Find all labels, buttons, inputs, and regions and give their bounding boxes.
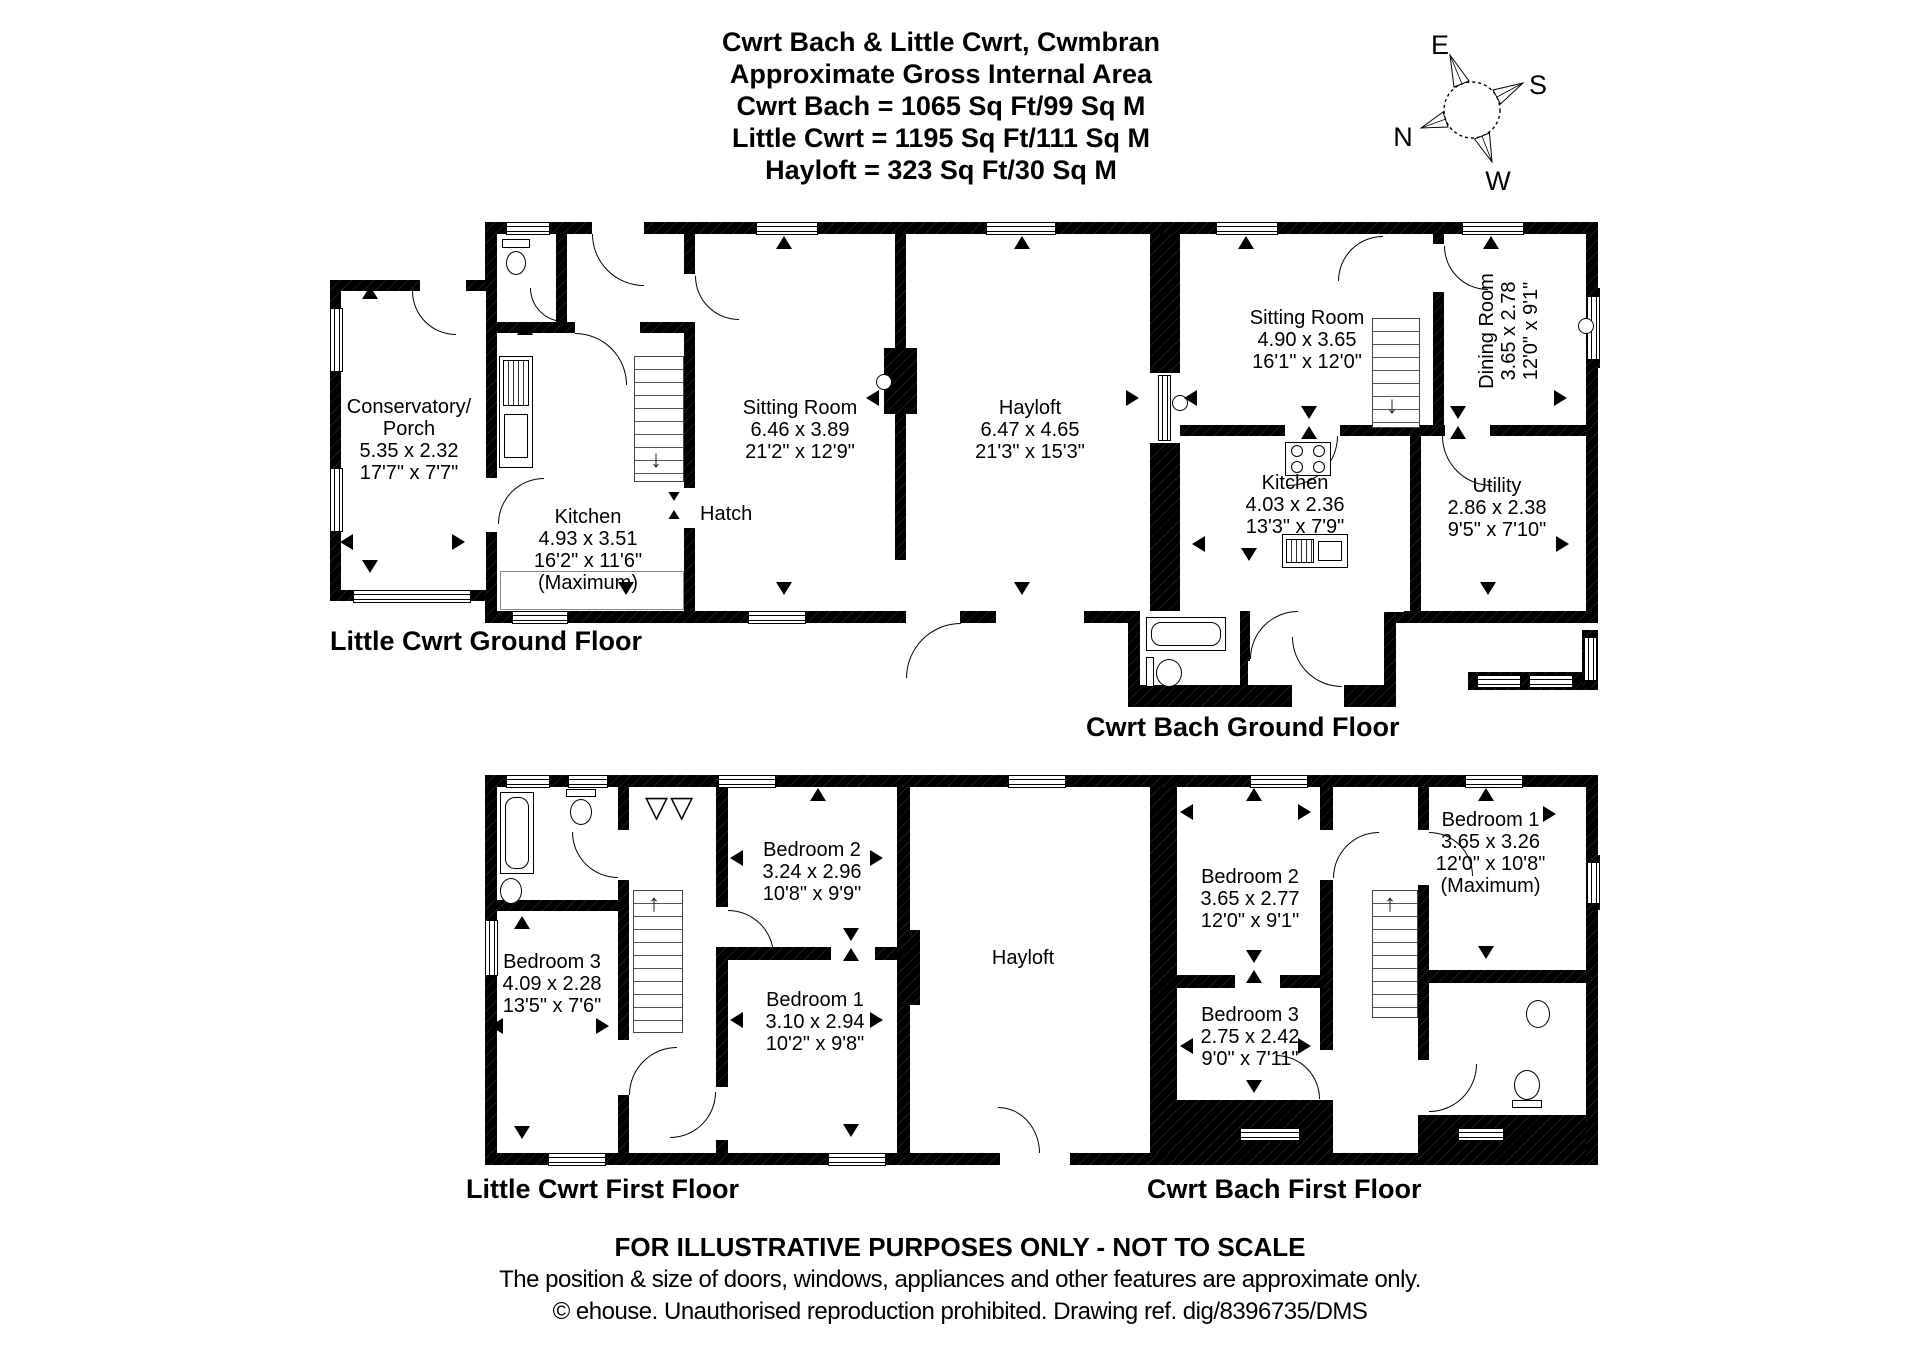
- room-label-bedroom1-cb: Bedroom 1 3.65 x 3.26 12'0" x 10'8" (Max…: [1398, 809, 1583, 897]
- direction-arrow-icon: [1180, 804, 1193, 820]
- window-icon: [1465, 775, 1523, 788]
- window-icon: [1462, 222, 1524, 235]
- bath-icon: [1146, 617, 1226, 651]
- door-opening: [996, 611, 1084, 623]
- wall: [618, 880, 629, 911]
- room-label-utility-cb: Utility 2.86 x 2.38 9'5" x 7'10": [1407, 475, 1587, 541]
- wall: [684, 528, 695, 611]
- direction-arrow-icon: [843, 948, 859, 961]
- room-label-hayloft-ground: Hayloft 6.47 x 4.65 21'3" x 15'3": [940, 397, 1120, 463]
- title-subtitle: Approximate Gross Internal Area: [0, 58, 1882, 90]
- room-label-bedroom3-cb: Bedroom 3 2.75 x 2.42 9'0" x 7'11": [1160, 1004, 1340, 1070]
- caption-little-cwrt-ground: Little Cwrt Ground Floor: [330, 626, 642, 657]
- door-opening: [1340, 599, 1404, 612]
- caption-cwrt-bach-ground: Cwrt Bach Ground Floor: [1086, 712, 1400, 743]
- footer-copyright: © ehouse. Unauthorised reproduction proh…: [0, 1296, 1920, 1328]
- direction-arrow-icon: [1298, 804, 1311, 820]
- door-opening: [1254, 599, 1308, 612]
- direction-arrow-icon: [1301, 406, 1317, 419]
- direction-arrow-icon: [1246, 1080, 1262, 1093]
- wall: [618, 1095, 629, 1153]
- wall: [716, 1140, 728, 1153]
- window-icon: [756, 222, 818, 235]
- compass-south-label: S: [1529, 70, 1547, 100]
- direction-arrow-icon: [1238, 236, 1254, 249]
- direction-arrow-icon: [452, 534, 465, 550]
- direction-arrow-icon: [1126, 390, 1139, 406]
- caption-cwrt-bach-first: Cwrt Bach First Floor: [1147, 1174, 1422, 1205]
- direction-arrow-icon: [843, 1124, 859, 1137]
- hob-icon: [1285, 442, 1331, 476]
- compass-north-label: N: [1393, 122, 1413, 152]
- window-icon: [1529, 675, 1573, 688]
- direction-arrow-icon: [1246, 788, 1262, 801]
- window-icon: [748, 611, 806, 624]
- stair-down-arrow-icon: ↓: [1386, 394, 1398, 418]
- window-icon: [568, 775, 608, 788]
- direction-arrow-icon: [490, 1018, 503, 1034]
- basin-icon: [1526, 1000, 1550, 1028]
- room-label-sitting-cb: Sitting Room 4.90 x 3.65 16'1" x 12'0": [1217, 307, 1397, 373]
- window-icon: [1240, 1128, 1300, 1141]
- window-icon: [1477, 675, 1521, 688]
- window-icon: [353, 590, 471, 603]
- room-label-bedroom2-lc: Bedroom 2 3.24 x 2.96 10'8" x 9'9": [722, 839, 902, 905]
- toilet-icon: [570, 799, 592, 825]
- hatch-symbol-icon: [668, 492, 679, 501]
- toilet-icon: [1514, 1070, 1540, 1100]
- compass-west-label: W: [1485, 166, 1511, 196]
- window-icon: [1587, 862, 1600, 904]
- wall: [1150, 787, 1177, 1153]
- window-icon: [1584, 637, 1597, 681]
- page-title: Cwrt Bach & Little Cwrt, Cwmbran: [0, 26, 1882, 58]
- room-label-kitchen-lc: Kitchen 4.93 x 3.51 16'2" x 11'6" (Maxim…: [498, 506, 678, 594]
- wall: [1320, 787, 1333, 830]
- direction-arrow-icon: [1184, 390, 1197, 406]
- toilet-icon: [1156, 659, 1182, 687]
- direction-arrow-icon: [843, 928, 859, 941]
- floorplan-page: Cwrt Bach & Little Cwrt, Cwmbran Approxi…: [0, 0, 1920, 1356]
- stair-down-arrow-icon: ↓: [650, 448, 662, 472]
- window-icon: [1458, 1128, 1504, 1141]
- footer-disclaimer: FOR ILLUSTRATIVE PURPOSES ONLY - NOT TO …: [0, 1230, 1920, 1264]
- direction-arrow-icon: [517, 322, 533, 335]
- direction-arrow-icon: [1450, 426, 1466, 439]
- hatch-label: Hatch: [700, 503, 790, 525]
- direction-arrow-icon: [1478, 788, 1494, 801]
- direction-arrow-icon: [1246, 950, 1262, 963]
- title-area-hayloft: Hayloft = 323 Sq Ft/30 Sq M: [0, 154, 1882, 186]
- wall: [1418, 885, 1429, 970]
- direction-arrow-icon: [340, 534, 353, 550]
- bath-icon: [500, 792, 534, 874]
- sink-bowl-icon: [1318, 541, 1342, 561]
- room-label-conservatory: Conservatory/ Porch 5.35 x 2.32 17'7" x …: [324, 396, 494, 484]
- direction-arrow-icon: [1478, 946, 1494, 959]
- direction-arrow-icon: [514, 916, 530, 929]
- cupboard-doors-icon: ▽▽: [645, 790, 695, 825]
- wall: [1240, 611, 1250, 661]
- door-opening: [1000, 1153, 1070, 1165]
- window-icon: [506, 222, 550, 235]
- stair-up-arrow-icon: ↑: [648, 892, 660, 916]
- footer: FOR ILLUSTRATIVE PURPOSES ONLY - NOT TO …: [0, 1230, 1920, 1328]
- direction-arrow-icon: [1241, 548, 1257, 561]
- toilet-icon: [1512, 1100, 1542, 1108]
- room-label-dining-cb: Dining Room 3.65 x 2.78 12'0" x 9'1": [1434, 251, 1584, 411]
- direction-arrow-icon: [362, 560, 378, 573]
- window-icon: [506, 775, 550, 788]
- compass-east-label: E: [1431, 30, 1449, 60]
- wall: [1180, 425, 1285, 436]
- direction-arrow-icon: [776, 236, 792, 249]
- wall: [1418, 970, 1586, 983]
- wall: [497, 322, 575, 333]
- door-arc-icon: [906, 623, 961, 678]
- direction-arrow-icon: [1192, 536, 1205, 552]
- wall: [1490, 425, 1586, 436]
- room-label-bedroom1-lc: Bedroom 1 3.10 x 2.94 10'2" x 9'8": [725, 989, 905, 1055]
- toilet-icon: [506, 251, 526, 275]
- room-label-bedroom3-lc: Bedroom 3 4.09 x 2.28 13'5" x 7'6": [462, 951, 642, 1017]
- stair-up-arrow-icon: ↑: [1384, 892, 1396, 916]
- window-icon: [330, 308, 343, 372]
- wall-recess-icon: [876, 374, 892, 390]
- title-area-little-cwrt: Little Cwrt = 1195 Sq Ft/111 Sq M: [0, 122, 1882, 154]
- wall: [1280, 975, 1333, 988]
- door-opening: [592, 222, 644, 234]
- direction-arrow-icon: [1014, 236, 1030, 249]
- window-icon: [512, 611, 568, 624]
- direction-arrow-icon: [810, 788, 826, 801]
- wall: [1418, 983, 1429, 1060]
- caption-little-cwrt-first: Little Cwrt First Floor: [466, 1174, 739, 1205]
- wall: [1433, 234, 1444, 244]
- drainer-icon: [503, 360, 529, 406]
- direction-arrow-icon: [1483, 236, 1499, 249]
- direction-arrow-icon: [514, 1126, 530, 1139]
- toilet-icon: [566, 789, 596, 797]
- wall: [684, 234, 695, 274]
- room-label-sitting-lc: Sitting Room 6.46 x 3.89 21'2" x 12'9": [710, 397, 890, 463]
- door-opening: [484, 478, 498, 532]
- window-icon: [1158, 375, 1171, 441]
- title-area-cwrt-bach: Cwrt Bach = 1065 Sq Ft/99 Sq M: [0, 90, 1882, 122]
- wall: [1177, 975, 1235, 988]
- direction-arrow-icon: [362, 286, 378, 299]
- door-opening: [1292, 685, 1344, 707]
- room-label-hayloft-first: Hayloft: [933, 947, 1113, 969]
- direction-arrow-icon: [1301, 426, 1317, 439]
- window-icon: [1250, 775, 1308, 788]
- footer-note: The position & size of doors, windows, a…: [0, 1264, 1920, 1296]
- wall: [875, 947, 897, 960]
- door-opening: [906, 611, 960, 623]
- direction-arrow-icon: [1246, 970, 1262, 983]
- toilet-icon: [1146, 657, 1154, 687]
- room-label-kitchen-cb: Kitchen 4.03 x 2.36 13'3" x 7'9": [1205, 472, 1385, 538]
- window-icon: [1008, 775, 1066, 788]
- drainer-icon: [1286, 539, 1314, 563]
- direction-arrow-icon: [776, 582, 792, 595]
- window-icon: [986, 222, 1056, 235]
- window-icon: [828, 1153, 886, 1166]
- window-icon: [548, 1153, 606, 1166]
- wall: [684, 322, 695, 488]
- direction-arrow-icon: [1480, 582, 1496, 595]
- compass-rose-icon: E S N W: [1390, 18, 1570, 208]
- room-label-bedroom2-cb: Bedroom 2 3.65 x 2.77 12'0" x 9'1": [1160, 866, 1340, 932]
- window-icon: [1216, 222, 1278, 235]
- basin-icon: [500, 878, 522, 904]
- title-block: Cwrt Bach & Little Cwrt, Cwmbran Approxi…: [0, 26, 1882, 186]
- window-icon: [718, 775, 776, 788]
- direction-arrow-icon: [596, 1018, 609, 1034]
- sink-bowl-icon: [504, 414, 528, 458]
- direction-arrow-icon: [1014, 582, 1030, 595]
- wall: [618, 787, 629, 830]
- toilet-icon: [502, 239, 530, 248]
- door-opening: [420, 280, 466, 291]
